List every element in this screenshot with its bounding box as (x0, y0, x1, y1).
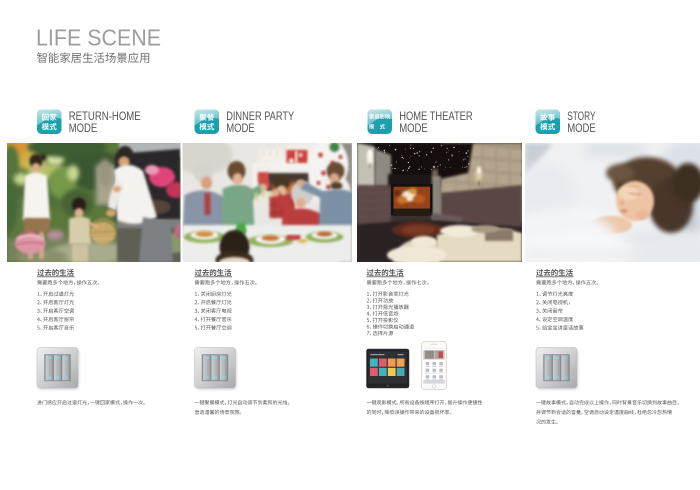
svg-text:MODE: MODE (399, 121, 428, 135)
svg-text:MODE: MODE (69, 121, 98, 135)
svg-text:LIFE SCENE: LIFE SCENE (36, 25, 161, 51)
svg-text:MODE: MODE (226, 121, 255, 135)
svg-text:MODE: MODE (567, 121, 596, 135)
